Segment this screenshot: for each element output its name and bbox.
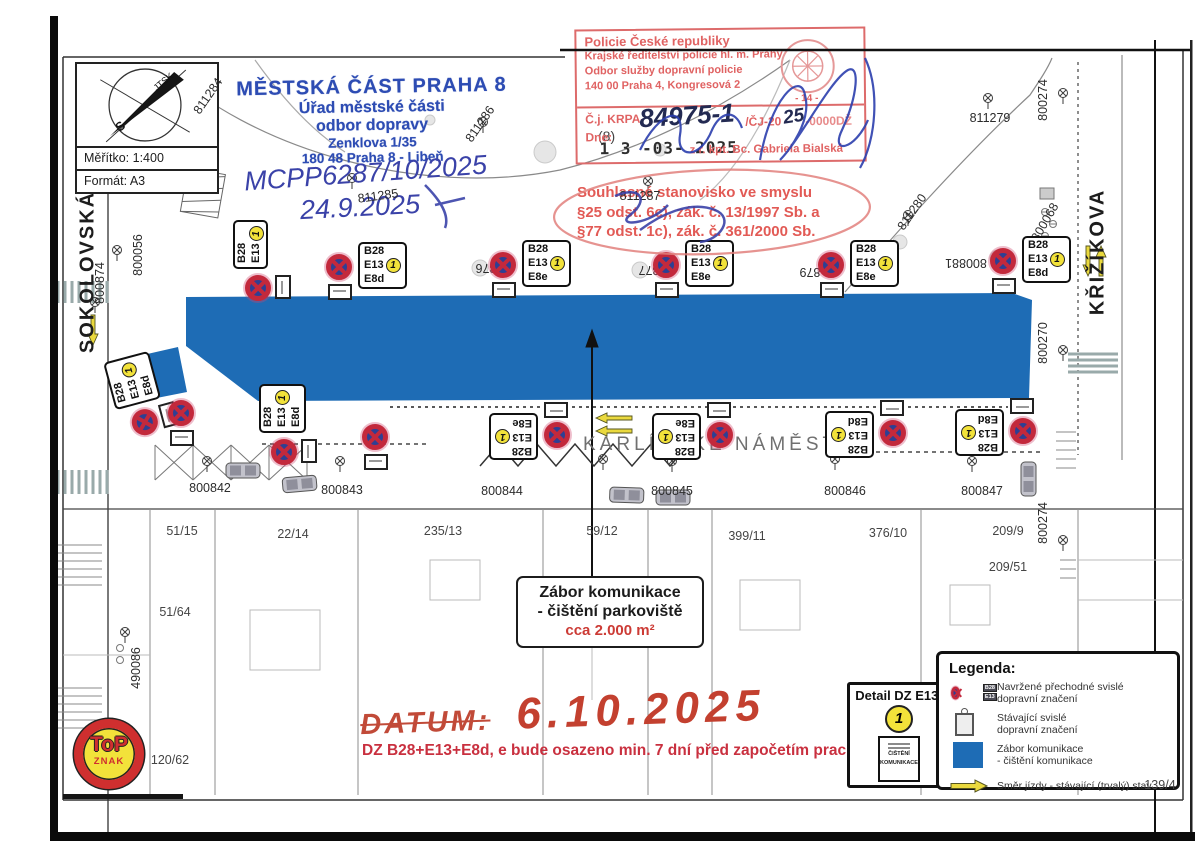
dashed-lines xyxy=(262,407,1040,452)
lamp-icon xyxy=(1059,89,1068,105)
park-paths xyxy=(160,58,1052,292)
title-block: S JTSK Měřítko: 1:400 Formát: A3 xyxy=(75,62,219,194)
lamp-icon xyxy=(831,455,840,471)
traffic-direction-arrow xyxy=(596,413,632,423)
lamp-icon xyxy=(479,118,488,134)
parked-car-icon xyxy=(1021,462,1036,496)
compass-icon: S JTSK xyxy=(77,64,213,146)
lamp-icon xyxy=(121,628,130,644)
lamp-icon xyxy=(348,174,357,190)
lamp-icon xyxy=(1059,346,1068,362)
lamp-icon xyxy=(984,94,993,110)
parked-car-icon xyxy=(609,487,644,503)
lamp-icon xyxy=(968,457,977,473)
scanned-traffic-plan: S JTSK Měřítko: 1:400 Formát: A3 MĚSTSKÁ… xyxy=(0,0,1200,847)
crosswalk-right xyxy=(1068,354,1118,372)
zigzag-line xyxy=(480,444,700,466)
bike-stand-icons xyxy=(117,188,1058,664)
traffic-direction-arrow xyxy=(596,426,632,436)
sheet-frame xyxy=(63,50,1183,800)
vegetation xyxy=(425,115,1006,278)
crosswalk-left-bottom xyxy=(58,470,107,494)
occupied-zone xyxy=(112,293,1032,405)
traffic-direction-arrow xyxy=(88,315,98,345)
parked-car-icon xyxy=(282,475,317,493)
scale-label: Měřítko: 1:400 xyxy=(77,146,217,169)
lamp-icon xyxy=(113,246,122,262)
parking-combs xyxy=(58,432,1076,728)
lamp-icon xyxy=(599,455,608,471)
traffic-direction-arrow xyxy=(1083,246,1093,276)
parked-car-icon xyxy=(656,490,690,505)
traffic-direction-arrow xyxy=(1096,246,1106,276)
road-lines xyxy=(63,40,1183,833)
lamp-icon xyxy=(336,457,345,473)
parked-car-icon xyxy=(226,463,260,478)
lamp-icon xyxy=(644,177,653,193)
format-label: Formát: A3 xyxy=(77,169,217,192)
crosswalk-left-top xyxy=(58,281,107,303)
building-lines xyxy=(63,509,1183,795)
lamp-icon xyxy=(1059,536,1068,552)
